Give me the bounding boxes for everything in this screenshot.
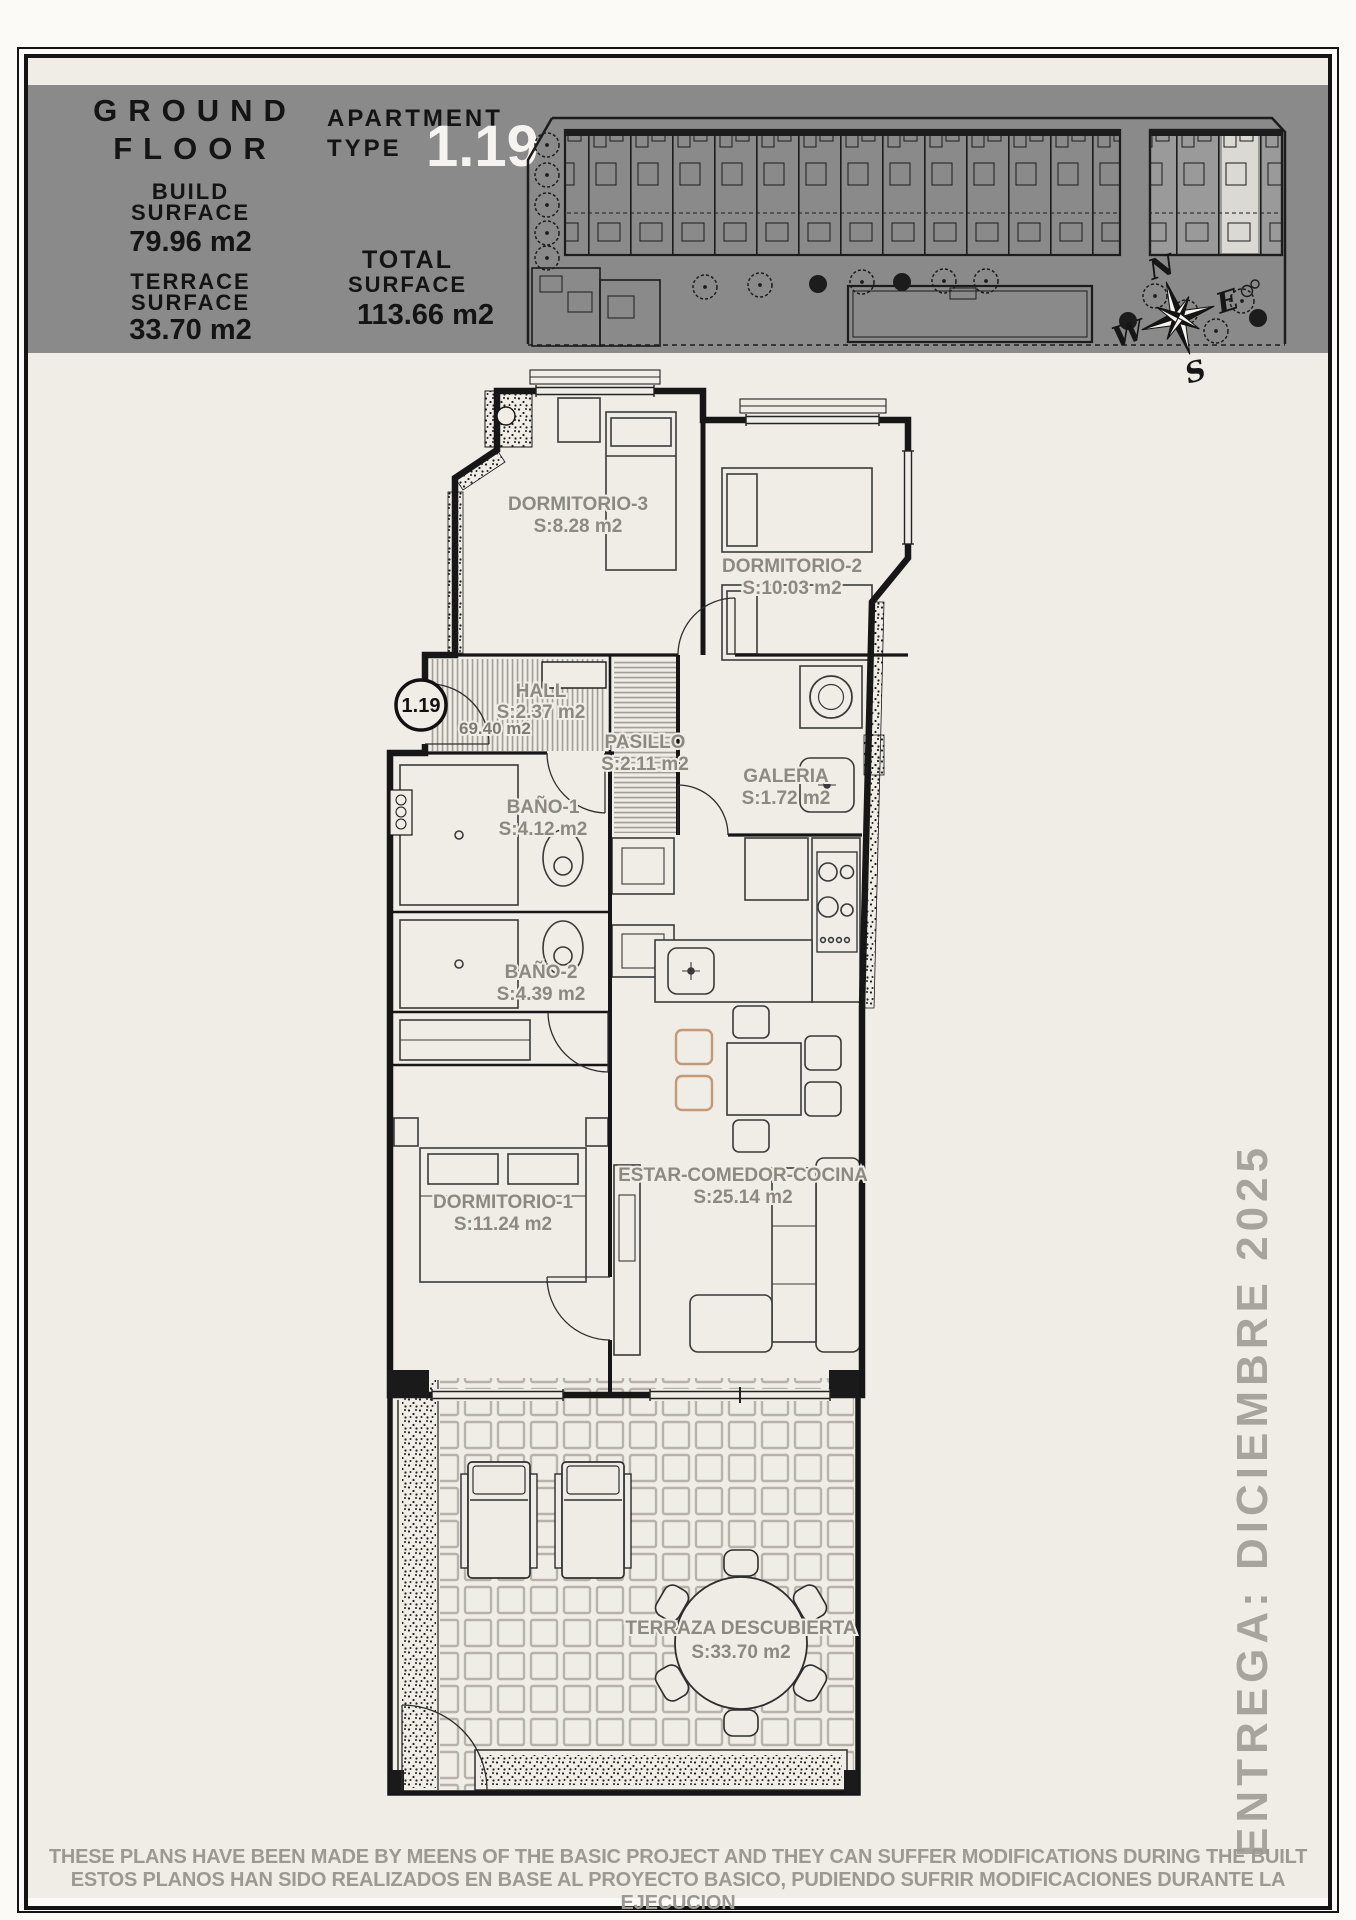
window-dorm1-terrace: [432, 1389, 563, 1401]
room-label: HALL: [516, 681, 567, 702]
window-dorm2-right: [902, 451, 914, 544]
room-area: S:2.37 m2: [497, 702, 586, 723]
pillow1-dorm1: [428, 1154, 498, 1184]
compass-east-label: E: [1211, 282, 1243, 320]
dining-chair-5: [805, 1082, 841, 1116]
compass-rose: N E S W: [1092, 232, 1261, 408]
tv-unit: [614, 1165, 640, 1355]
pillow2-dorm2: [727, 591, 757, 654]
nightstand2-dorm1: [586, 1118, 608, 1146]
sofa-chaise: [690, 1295, 772, 1352]
room-area: S:10.03 m2: [742, 578, 841, 599]
room-label: DORMITORIO-1: [433, 1192, 573, 1213]
window-dorm3-top: [530, 370, 660, 397]
room-area: S:4.12 m2: [499, 819, 588, 840]
sofa-back: [816, 1158, 860, 1352]
corner-block: [844, 1770, 858, 1793]
pillow2-dorm1: [508, 1154, 578, 1184]
room-label: ESTAR-COMEDOR-COCINA: [618, 1165, 868, 1186]
kitchen-counter-right: [812, 838, 860, 1002]
room-label: DORMITORIO-3: [508, 494, 648, 515]
dining-table: [727, 1043, 801, 1115]
pillow-dorm3: [611, 418, 671, 446]
compass-south-label: S: [1181, 353, 1210, 391]
room-area: S:4.39 m2: [497, 984, 586, 1005]
terrace-planter-strip: [402, 1380, 436, 1788]
corner-block: [387, 1370, 429, 1398]
dining-chair-tan-1: [676, 1030, 712, 1064]
room-label: BAÑO-1: [507, 796, 580, 818]
door-bano2: [548, 1012, 608, 1072]
dining-chair-4: [805, 1036, 841, 1070]
vanity-bano1: [612, 838, 674, 894]
dining-chair-6: [733, 1120, 769, 1152]
door-galeria: [678, 785, 728, 835]
terrace-tile-floor: [440, 1378, 854, 1790]
corner-block: [829, 1370, 859, 1398]
pillow1-dorm2: [727, 474, 757, 546]
room-label: BAÑO-2: [505, 961, 578, 983]
unit-marker-number: 1.19: [402, 695, 441, 717]
fridge: [745, 838, 808, 900]
plan-drawing: N E S W: [0, 0, 1356, 1920]
room-label: TERRAZA DESCUBIERTA: [625, 1618, 856, 1639]
nightstand-dorm3: [558, 398, 600, 442]
window-living-terrace: [650, 1387, 830, 1403]
room-area: S:11.24 m2: [454, 1214, 552, 1235]
room-area: S:25.14 m2: [693, 1187, 792, 1208]
room-area: S:1.72 m2: [742, 788, 831, 809]
room-label: PASILLO: [605, 732, 686, 753]
door-dorm1: [547, 1277, 610, 1340]
compass-west-label: W: [1108, 312, 1151, 354]
room-area: S:2.11 m2: [601, 754, 689, 775]
dining-chair-tan-2: [676, 1076, 712, 1110]
room-label: GALERIA: [743, 766, 829, 787]
room-area: S:33.70 m2: [691, 1642, 790, 1663]
nightstand1-dorm1: [394, 1118, 418, 1146]
room-area: S:8.28 m2: [534, 516, 623, 537]
dining-chair-3: [733, 1006, 769, 1038]
sun-lounger-2: [555, 1462, 631, 1578]
sun-lounger-1: [461, 1462, 537, 1578]
room-label: DORMITORIO-2: [722, 556, 862, 577]
window-dorm2-top: [740, 399, 886, 426]
floorplan-sheet: GROUND FLOOR BUILD SURFACE 79.96 m2 TERR…: [0, 0, 1356, 1920]
